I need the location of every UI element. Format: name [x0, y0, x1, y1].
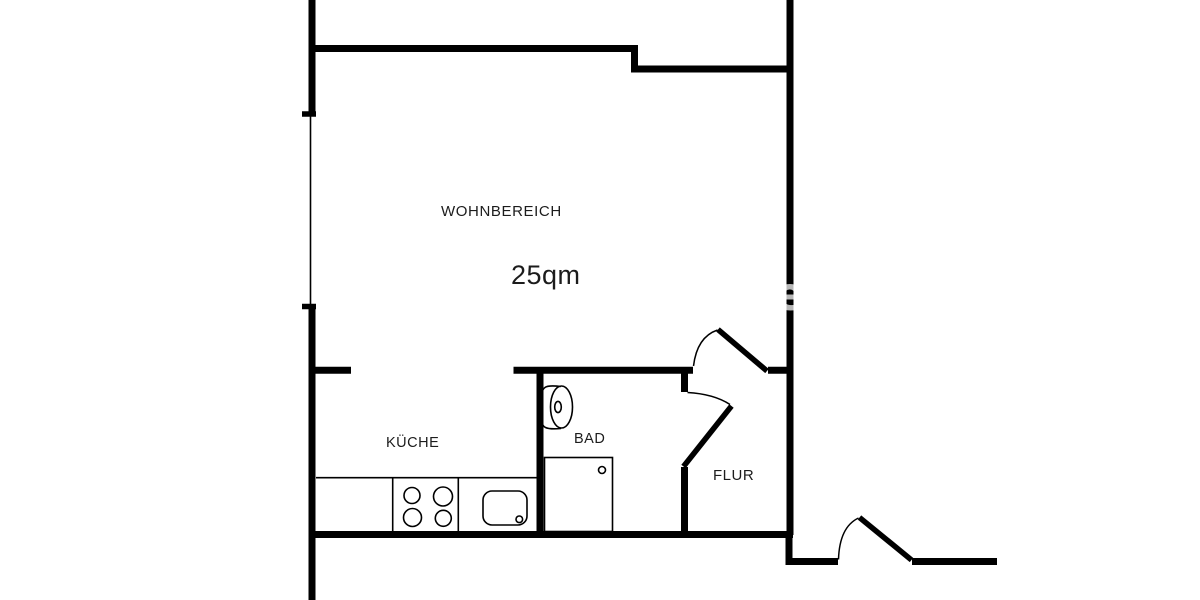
- room-label-wohnbereich: WOHNBEREICH: [441, 204, 562, 219]
- kitchen-counter: [316, 478, 537, 532]
- shower-drain: [599, 467, 606, 474]
- entrance-door: [694, 330, 768, 372]
- window-ticks: [302, 114, 316, 307]
- floor-plan-drawing: [0, 0, 1200, 600]
- walls: [309, 0, 998, 600]
- floor-plan: WOHNBEREICH 25qm KÜCHE BAD FLUR e: [0, 0, 1200, 600]
- room-label-kueche: KÜCHE: [386, 436, 439, 451]
- room-area-label: 25qm: [511, 262, 581, 289]
- toilet-flush: [555, 401, 562, 412]
- stove-burner: [435, 510, 451, 526]
- entrance-door-swing-arc: [694, 330, 718, 366]
- stove-burner: [404, 488, 420, 504]
- sink-basin: [483, 491, 527, 525]
- bath-door-swing-arc: [688, 393, 731, 405]
- shower-tray: [545, 458, 613, 532]
- building-door: [839, 518, 912, 561]
- sink-icon: [483, 491, 527, 525]
- building-door-leaf: [860, 518, 912, 561]
- sink-drain: [516, 516, 523, 523]
- stove-burner: [404, 509, 422, 527]
- bath-door: [684, 393, 732, 467]
- entrance-door-leaf: [718, 330, 767, 372]
- stove-burner: [434, 487, 453, 506]
- room-label-bad: BAD: [574, 432, 605, 447]
- room-label-flur: FLUR: [713, 468, 754, 483]
- toilet-body: [542, 386, 561, 429]
- stove-icon: [404, 487, 453, 527]
- building-door-swing-arc: [839, 518, 859, 560]
- watermark: e: [774, 271, 805, 317]
- bath-door-leaf: [684, 406, 732, 467]
- shower-tray-icon: [545, 458, 613, 532]
- toilet-icon: [542, 386, 573, 429]
